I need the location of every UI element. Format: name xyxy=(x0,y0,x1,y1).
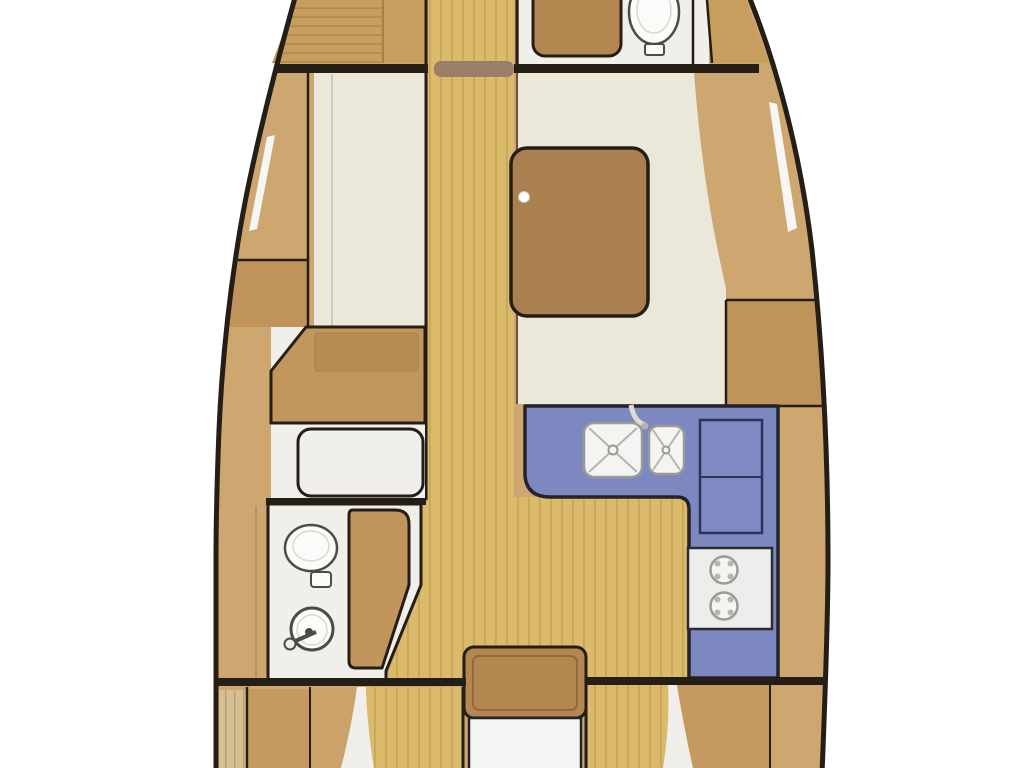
forward-bulkhead-port xyxy=(275,64,428,73)
burner-dot xyxy=(728,597,734,603)
burner-ring xyxy=(711,593,738,620)
burner-dot xyxy=(715,574,721,580)
stove-burner-top xyxy=(711,557,738,584)
port-mid-cabinet xyxy=(228,261,308,327)
companionway xyxy=(464,647,586,768)
burner-dot xyxy=(715,610,721,616)
starboard-aft-floor xyxy=(588,685,668,768)
table-dot xyxy=(519,192,530,203)
forward-door-lintel xyxy=(434,61,514,77)
starboard-aft-cabin xyxy=(586,685,770,768)
port-aft-floor xyxy=(366,687,462,768)
companionway-steps xyxy=(464,647,586,718)
port-aft-berth-slats xyxy=(219,690,246,768)
stove-burner-bottom xyxy=(711,593,738,620)
burner-ring xyxy=(711,557,738,584)
floor-plan-canvas xyxy=(0,0,1024,768)
burner-dot xyxy=(715,561,721,567)
nav-seat xyxy=(298,429,423,496)
aft-toilet-base xyxy=(311,572,331,587)
forward-bulkhead-starboard xyxy=(514,64,759,73)
saloon-table xyxy=(511,148,648,316)
burner-dot xyxy=(728,610,734,616)
forward-seat xyxy=(533,0,621,56)
v-berth-side-panel xyxy=(383,0,425,63)
galley-sink-large-drain xyxy=(609,446,618,455)
galley-sink-small-drain xyxy=(663,447,670,454)
aft-basin-faucet-handle xyxy=(285,639,296,650)
burner-dot xyxy=(728,561,734,567)
nav-station xyxy=(266,327,426,505)
forward-cabin xyxy=(272,0,769,64)
burner-dot xyxy=(728,574,734,580)
burner-dot xyxy=(715,597,721,603)
port-aft-cabin xyxy=(219,687,463,768)
starboard-aft-panel xyxy=(677,685,770,768)
engine-hatch xyxy=(469,718,581,768)
port-settee xyxy=(314,72,425,328)
chart-desk-top xyxy=(315,333,418,371)
aft-bulkhead-port xyxy=(216,678,466,686)
aft-bulkhead-starboard xyxy=(585,677,825,685)
galley-faucet-base xyxy=(642,423,649,430)
starboard-cabinet xyxy=(726,300,824,405)
port-aft-panel-1 xyxy=(249,689,309,768)
forward-toilet-base xyxy=(645,44,664,55)
